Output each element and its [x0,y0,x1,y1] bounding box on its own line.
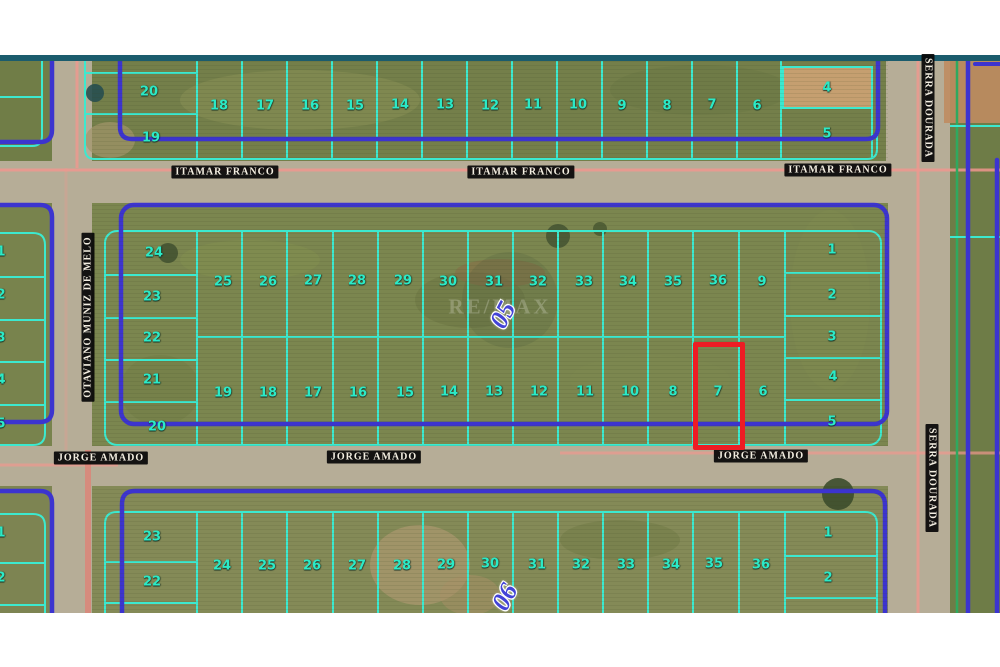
map-image [0,61,1000,613]
map-graphics [0,61,1000,613]
aerial-lot-map: RE/MAX 201918171615141312111098764524232… [0,0,1000,667]
selected-lot-highlight [693,342,745,450]
